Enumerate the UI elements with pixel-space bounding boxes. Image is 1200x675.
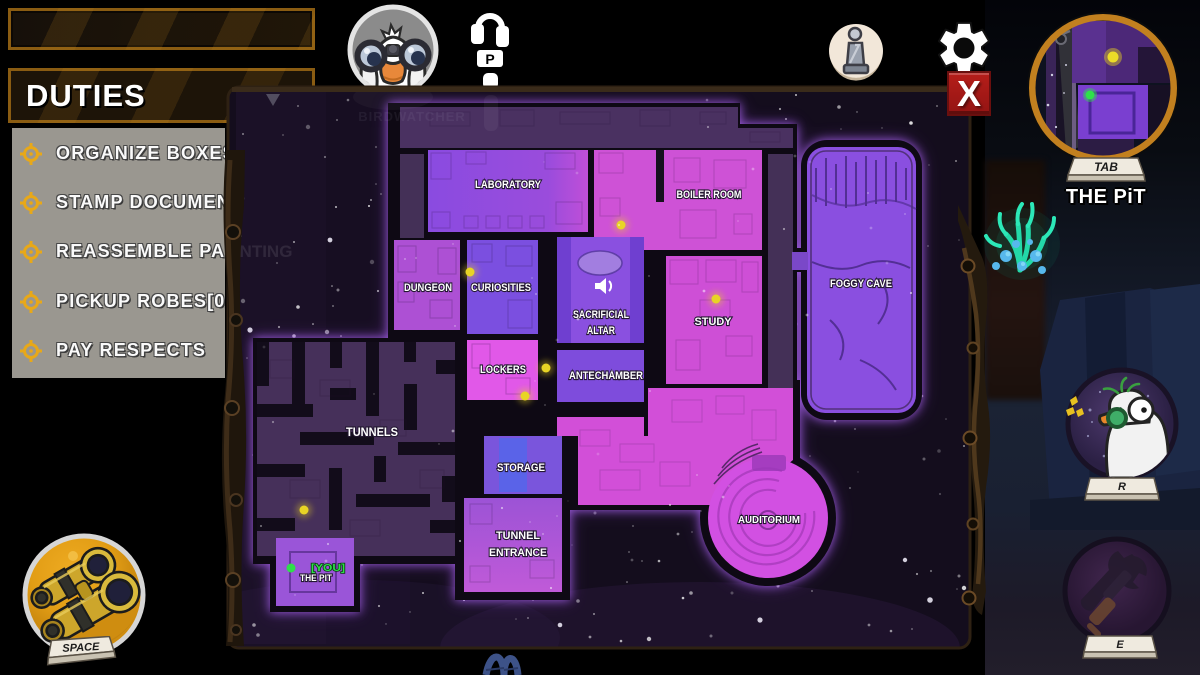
svg-text:THE PIT: THE PIT <box>300 573 332 583</box>
svg-text:TUNNELS: TUNNELS <box>346 425 398 439</box>
svg-text:[YOU]: [YOU] <box>311 563 345 574</box>
svg-text:STORAGE: STORAGE <box>497 462 545 474</box>
svg-text:AUDITORIUM: AUDITORIUM <box>738 514 800 526</box>
svg-text:LOCKERS: LOCKERS <box>480 364 526 376</box>
svg-text:P: P <box>485 51 494 67</box>
svg-text:FOGGY CAVE: FOGGY CAVE <box>830 278 892 290</box>
svg-text:E: E <box>1116 639 1124 651</box>
svg-text:ALTAR: ALTAR <box>587 325 615 337</box>
svg-text:CURIOSITIES: CURIOSITIES <box>471 282 531 294</box>
svg-text:SPACE: SPACE <box>62 641 100 655</box>
svg-text:BOILER ROOM: BOILER ROOM <box>677 189 742 201</box>
svg-text:SACRIFICIAL: SACRIFICIAL <box>573 309 629 321</box>
svg-text:TAB: TAB <box>1094 160 1118 174</box>
svg-text:NTING: NTING <box>240 242 293 261</box>
svg-text:ANTECHAMBER: ANTECHAMBER <box>569 370 643 382</box>
svg-text:BIRDWATCHER: BIRDWATCHER <box>358 109 466 124</box>
svg-text:R: R <box>1118 481 1126 493</box>
svg-text:TUNNEL: TUNNEL <box>496 530 540 542</box>
svg-text:STUDY: STUDY <box>695 316 733 328</box>
svg-text:ENTRANCE: ENTRANCE <box>489 547 547 559</box>
svg-text:DUNGEON: DUNGEON <box>404 282 452 294</box>
svg-text:LABORATORY: LABORATORY <box>475 179 542 191</box>
